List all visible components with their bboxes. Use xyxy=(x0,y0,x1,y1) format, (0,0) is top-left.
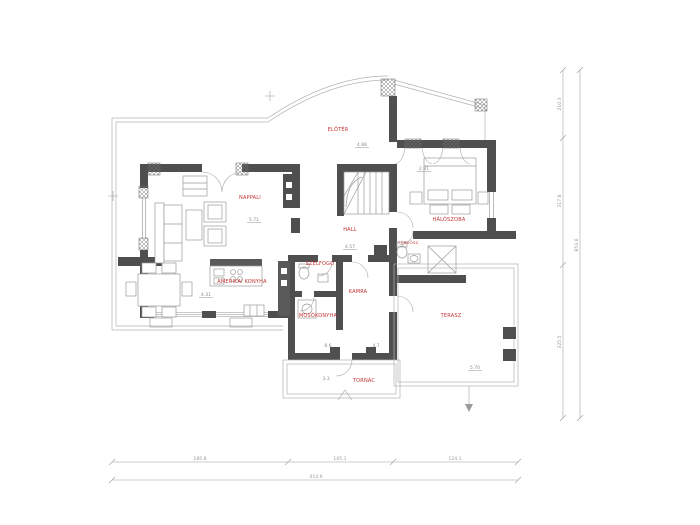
room-label-bedroom: HÁLÓSZOBA xyxy=(433,216,466,223)
room-value-hall: 4.57 xyxy=(345,244,355,250)
room-label-vestibule: SZÉLFOGÓ xyxy=(306,259,335,267)
dimension-right: 210.3 317.8 325.5 853.6 xyxy=(557,67,583,421)
dim-right-total: 853.6 xyxy=(574,238,580,251)
dim-bottom-seg-2: 105.1 xyxy=(333,456,346,462)
room-label-kitchen: AMERIKAI KONYHA xyxy=(217,279,267,285)
room-value-terrace: 5.70 xyxy=(470,365,480,371)
dim-bottom-seg-3: 124.1 xyxy=(448,456,461,462)
bedroom-furniture xyxy=(395,148,488,214)
dimension-bottom: 185.8 105.1 124.1 414.9 xyxy=(109,456,521,483)
dim-right-seg-2: 317.8 xyxy=(557,194,563,207)
dim-right-seg-1: 210.3 xyxy=(557,97,563,110)
porch-area xyxy=(283,360,400,400)
floor-plan-page: ELŐTÉR NAPPALI HALL HÁLÓSZOBA FÜRDŐSZ. S… xyxy=(0,0,700,525)
dim-right-seg-3: 325.5 xyxy=(557,335,563,348)
room-label-bathroom: FÜRDŐSZ. xyxy=(398,240,419,245)
room-label-laundry: MOSÓKONYHA xyxy=(299,312,338,319)
dim-bottom-seg-1: 185.8 xyxy=(193,456,206,462)
room-value-corridor: 4.88 xyxy=(357,142,367,148)
kitchen-dining-furniture xyxy=(126,259,290,317)
room-label-pantry: KAMRA xyxy=(349,289,368,295)
room-value-bedroom: 2.81 xyxy=(419,166,429,172)
opening-width-right: 4.7 xyxy=(372,343,379,349)
room-label-corridor: ELŐTÉR xyxy=(328,125,349,133)
room-label-porch: TORNÁC xyxy=(352,377,376,384)
room-label-hall: HALL xyxy=(343,227,357,233)
floor-plan-drawing: ELŐTÉR NAPPALI HALL HÁLÓSZOBA FÜRDŐSZ. S… xyxy=(0,0,700,525)
staircase xyxy=(344,172,389,214)
dim-bottom-total: 414.9 xyxy=(309,474,322,480)
room-label-living: NAPPALI xyxy=(239,195,261,201)
room-value-living: 5.71 xyxy=(249,217,259,223)
room-value-kitchen: 4.31 xyxy=(201,292,211,298)
opening-width-left: 8.6 xyxy=(324,343,331,349)
bathroom-fixtures xyxy=(397,242,456,273)
terrace-area xyxy=(394,264,518,412)
room-label-terrace: TERASZ xyxy=(440,313,462,319)
room-value-porch: 3.3 xyxy=(322,376,329,382)
living-room-furniture xyxy=(155,176,226,263)
